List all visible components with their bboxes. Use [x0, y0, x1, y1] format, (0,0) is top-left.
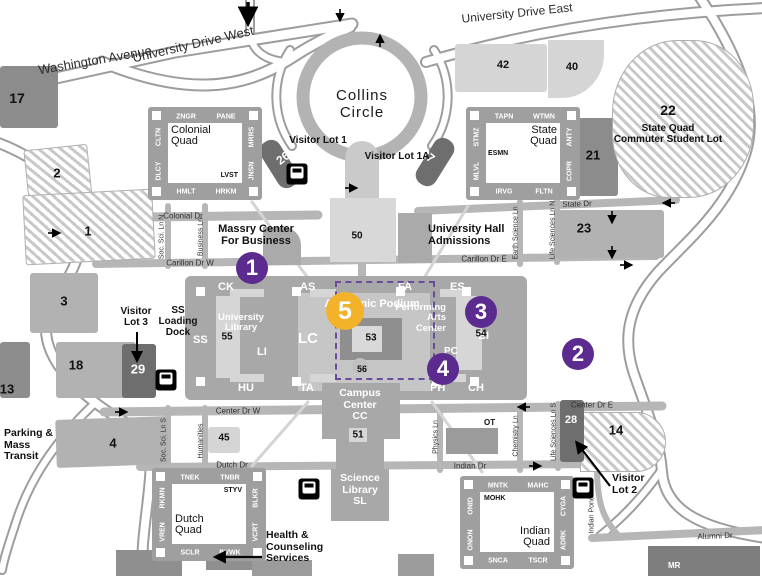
bus-icon-part [293, 169, 302, 173]
map-marker-2[interactable]: 2 [562, 338, 594, 370]
bus-icon-part [304, 494, 308, 498]
bus-stop-icon-3[interactable] [299, 479, 320, 500]
bus-icon-part [292, 179, 296, 183]
bus-stop-icon-4[interactable] [573, 478, 594, 499]
bus-icon-part [161, 385, 165, 389]
bus-icon-part [311, 494, 315, 498]
bus-icon-part [305, 484, 314, 488]
map-marker-4[interactable]: 4 [427, 353, 459, 385]
bus-stop-icon-1[interactable] [287, 164, 308, 185]
campus-map: ColonialQuadLVSTZNGRPANEHMLTHRKMCLTNDLCY… [0, 0, 762, 576]
map-marker-1[interactable]: 1 [236, 252, 268, 284]
map-marker-3[interactable]: 3 [465, 296, 497, 328]
bus-icon-part [162, 375, 171, 379]
bus-icon-part [299, 179, 303, 183]
bus-icon-part [585, 493, 589, 497]
bus-stop-icon-2[interactable] [156, 370, 177, 391]
map-marker-5[interactable]: 5 [326, 292, 364, 330]
bus-icon-part [579, 483, 588, 487]
bus-icon-part [578, 493, 582, 497]
bus-icon-part [168, 385, 172, 389]
